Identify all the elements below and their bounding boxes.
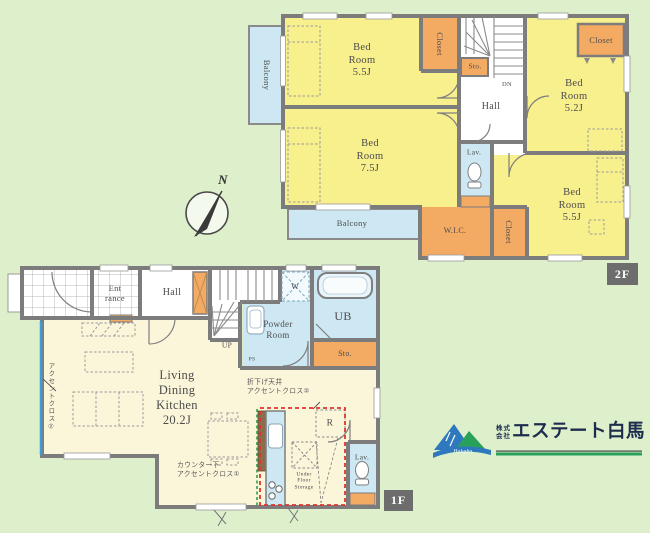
- room-label-lavatory-2f: Lav.: [467, 148, 481, 157]
- toilet-icon-2f: [468, 163, 481, 188]
- annotation-lowered-ceiling: 折下げ天井 アクセントクロス②: [247, 378, 310, 396]
- compass-icon: [186, 191, 228, 237]
- boundary-tick-marks: [214, 508, 298, 526]
- floor-badge-1f: 1F: [384, 490, 413, 511]
- room-label-lavatory-1f: Lav.: [355, 453, 369, 462]
- room-label-powder-room: Powder Room: [263, 319, 292, 341]
- pipe-space-label: PS: [249, 357, 256, 364]
- annotation-counter-accent: カウンター下 アクセントクロス①: [177, 461, 240, 479]
- logo-underline: [496, 451, 642, 456]
- room-label-hall-1f: Hall: [163, 287, 181, 299]
- floorplan-drawing: [0, 0, 650, 533]
- room-label-balcony-left-2f: Balcony: [262, 60, 272, 90]
- room-label-bedroom-5-2: Bed Room 5.2J: [561, 78, 588, 116]
- room-label-unit-bath: UB: [334, 309, 351, 323]
- annotation-accent-wall: アクセントクロス②: [46, 363, 54, 432]
- room-label-ldk: Living Dining Kitchen 20.2J: [156, 368, 198, 428]
- stairs-down-label: DN: [502, 81, 512, 89]
- stairs-up-label: UP: [222, 341, 232, 350]
- washer-space-label: W: [291, 282, 299, 292]
- logo-company-name: エステート白馬: [512, 420, 645, 442]
- room-label-bedroom-7-5: Bed Room 7.5J: [357, 138, 384, 176]
- room-label-storage-1f: Sto.: [338, 349, 352, 359]
- bathtub-icon: [318, 273, 372, 298]
- kitchen-sink-icon: [269, 424, 283, 448]
- fridge-space-label: R: [327, 418, 334, 429]
- room-label-hall-2f: Hall: [482, 101, 500, 113]
- room-label-bedroom-5-5-tl: Bed Room 5.5J: [349, 42, 376, 80]
- floor-badge-2f: 2F: [607, 263, 638, 285]
- room-label-balcony-bottom-2f: Balcony: [337, 218, 367, 228]
- floorplan-canvas: Balcony Bed Room 5.5J Closet Sto. DN Hal…: [0, 0, 650, 533]
- room-label-entrance: Ent rance: [105, 283, 125, 303]
- room-label-closet-top-2f: Closet: [435, 32, 445, 56]
- toilet-icon-1f: [356, 462, 369, 486]
- room-label-storage-2f: Sto.: [468, 62, 481, 71]
- logo-company-prefix: 株式 会社: [496, 425, 511, 441]
- powder-sink-icon: [247, 306, 264, 334]
- under-floor-storage-label: Under Floor Storage: [295, 472, 314, 491]
- compass-north-label: N: [218, 172, 228, 188]
- logo-hakuba-script: Hakuba: [453, 449, 472, 456]
- room-label-wic: W.I.C.: [444, 226, 467, 236]
- room-label-closet-tr-2f: Closet: [589, 35, 613, 45]
- room-label-bedroom-5-5-br: Bed Room 5.5J: [559, 187, 586, 225]
- room-label-closet-bottom-2f: Closet: [504, 220, 514, 244]
